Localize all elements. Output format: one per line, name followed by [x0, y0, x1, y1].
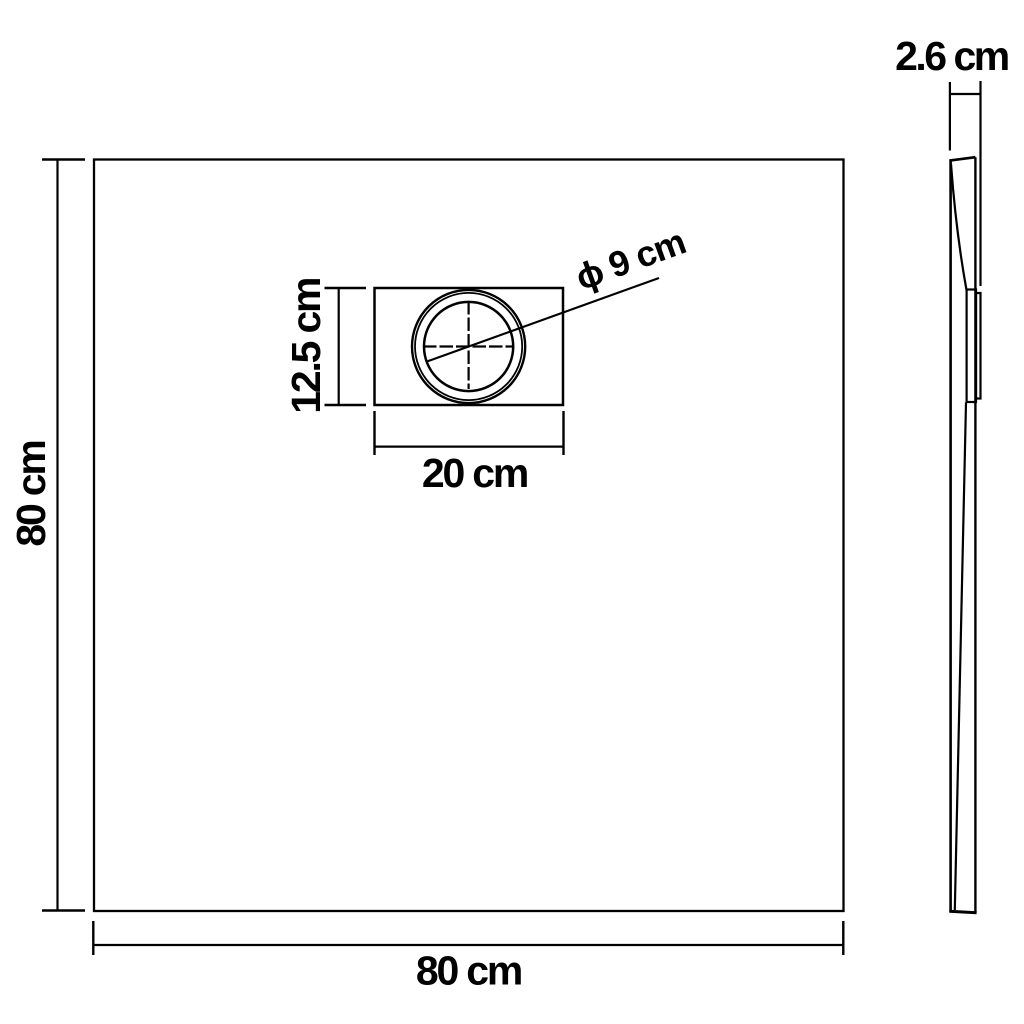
svg-text:80 cm: 80 cm	[8, 441, 54, 546]
svg-text:ϕ 9 cm: ϕ 9 cm	[570, 221, 690, 298]
svg-text:20 cm: 20 cm	[422, 450, 527, 496]
svg-text:12.5 cm: 12.5 cm	[283, 279, 329, 414]
svg-text:2.6 cm: 2.6 cm	[895, 33, 1008, 79]
svg-text:80 cm: 80 cm	[416, 948, 521, 994]
